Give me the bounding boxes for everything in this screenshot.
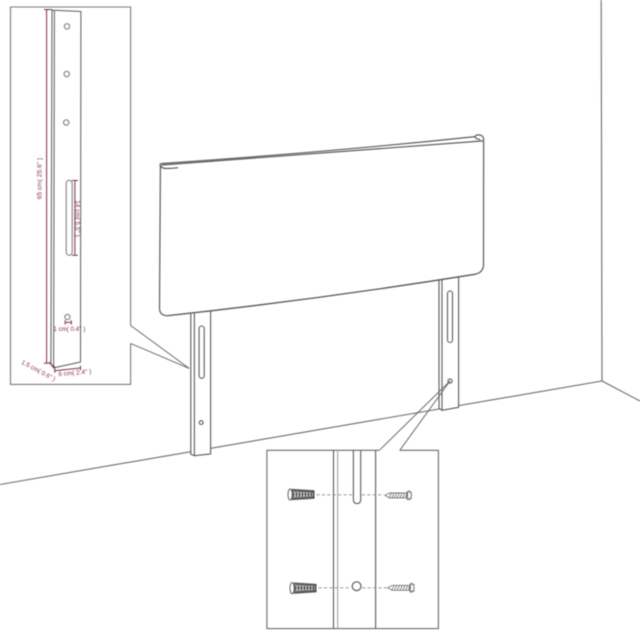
svg-text:14 cm( 5.5'' ): 14 cm( 5.5'' ) [74,200,81,237]
svg-text:1 cm( 0.4'' ): 1 cm( 0.4'' ) [53,326,85,333]
svg-text:65 cm( 25.6'' ): 65 cm( 25.6'' ) [36,158,43,199]
